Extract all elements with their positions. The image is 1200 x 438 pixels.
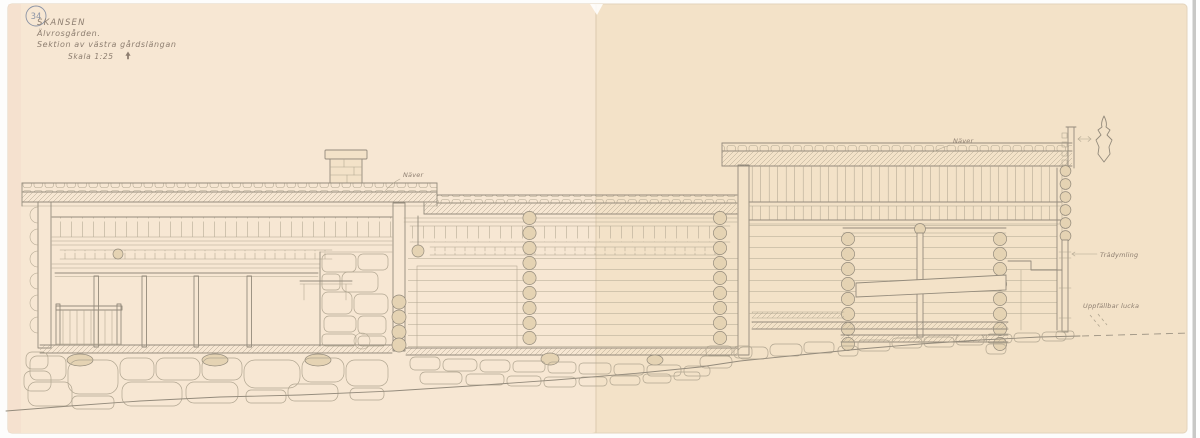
- chimney: [325, 150, 367, 183]
- title: SKANSEN: [37, 18, 86, 28]
- drawing-canvas: 34 SKANSEN Älvrosgården. Sektion av väst…: [0, 0, 1200, 438]
- subtitle: Älvrosgården.: [36, 28, 100, 38]
- annotation-naver-right: Näver: [953, 137, 974, 145]
- scanned-drawing-sheet: 34 SKANSEN Älvrosgården. Sektion av väst…: [0, 0, 1200, 438]
- annotation-hatch: Uppfällbar lucka: [1083, 302, 1139, 310]
- annotation-dowel: Trädymling: [1100, 251, 1138, 259]
- log-end-stack: [713, 211, 726, 344]
- pole-log-end: [113, 249, 123, 259]
- scale-note: Skala 1:25: [68, 52, 114, 61]
- log-end-stack: [523, 211, 536, 344]
- description: Sektion av västra gårdslängan: [37, 39, 177, 49]
- annotation-naver-left: Näver: [403, 171, 424, 179]
